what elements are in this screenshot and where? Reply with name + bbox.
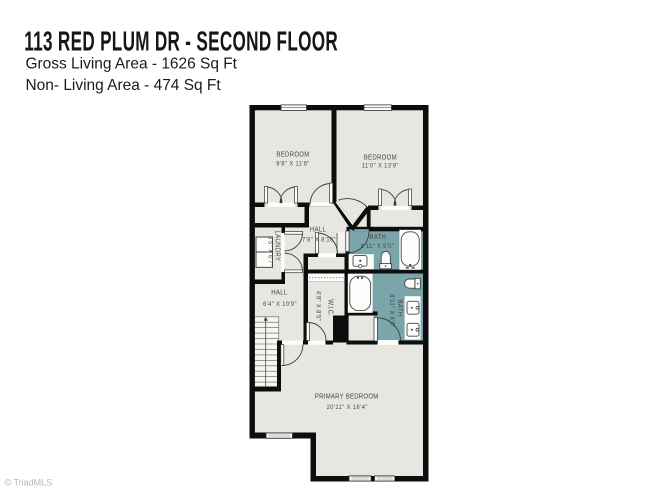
- svg-text:8'11" X 5'0": 8'11" X 5'0": [361, 243, 394, 250]
- svg-text:BATH: BATH: [369, 234, 386, 241]
- svg-text:113 RED PLUM DR - SECOND FLOOR: 113 RED PLUM DR - SECOND FLOOR: [24, 25, 338, 56]
- svg-text:11'0" X 13'9": 11'0" X 13'9": [362, 162, 399, 169]
- svg-text:9'8" X 11'6": 9'8" X 11'6": [276, 160, 309, 167]
- svg-text:Gross Living Area - 1626 Sq Ft: Gross Living Area - 1626 Sq Ft: [26, 55, 238, 72]
- svg-text:W.I.C.: W.I.C.: [326, 299, 333, 316]
- svg-text:Non- Living Area - 474 Sq Ft: Non- Living Area - 474 Sq Ft: [26, 77, 222, 94]
- svg-text:BEDROOM: BEDROOM: [364, 154, 397, 161]
- svg-text:7'8" X 8'10": 7'8" X 8'10": [302, 236, 336, 243]
- svg-text:PRIMARY BEDROOM: PRIMARY BEDROOM: [315, 393, 379, 400]
- svg-text:HALL: HALL: [271, 289, 287, 296]
- svg-text:4'9" X 8'5": 4'9" X 8'5": [314, 291, 321, 321]
- svg-text:3'5" X 6'7": 3'5" X 6'7": [266, 236, 273, 266]
- svg-text:6'4" X 10'9": 6'4" X 10'9": [263, 300, 297, 307]
- svg-text:8'11" X 8'5": 8'11" X 8'5": [388, 294, 395, 327]
- svg-text:BEDROOM: BEDROOM: [276, 151, 309, 158]
- svg-text:HALL: HALL: [310, 226, 326, 233]
- svg-text:BATH: BATH: [396, 300, 403, 317]
- svg-text:20'11" X 16'4": 20'11" X 16'4": [327, 404, 368, 411]
- svg-text:© TriadMLS: © TriadMLS: [5, 477, 53, 487]
